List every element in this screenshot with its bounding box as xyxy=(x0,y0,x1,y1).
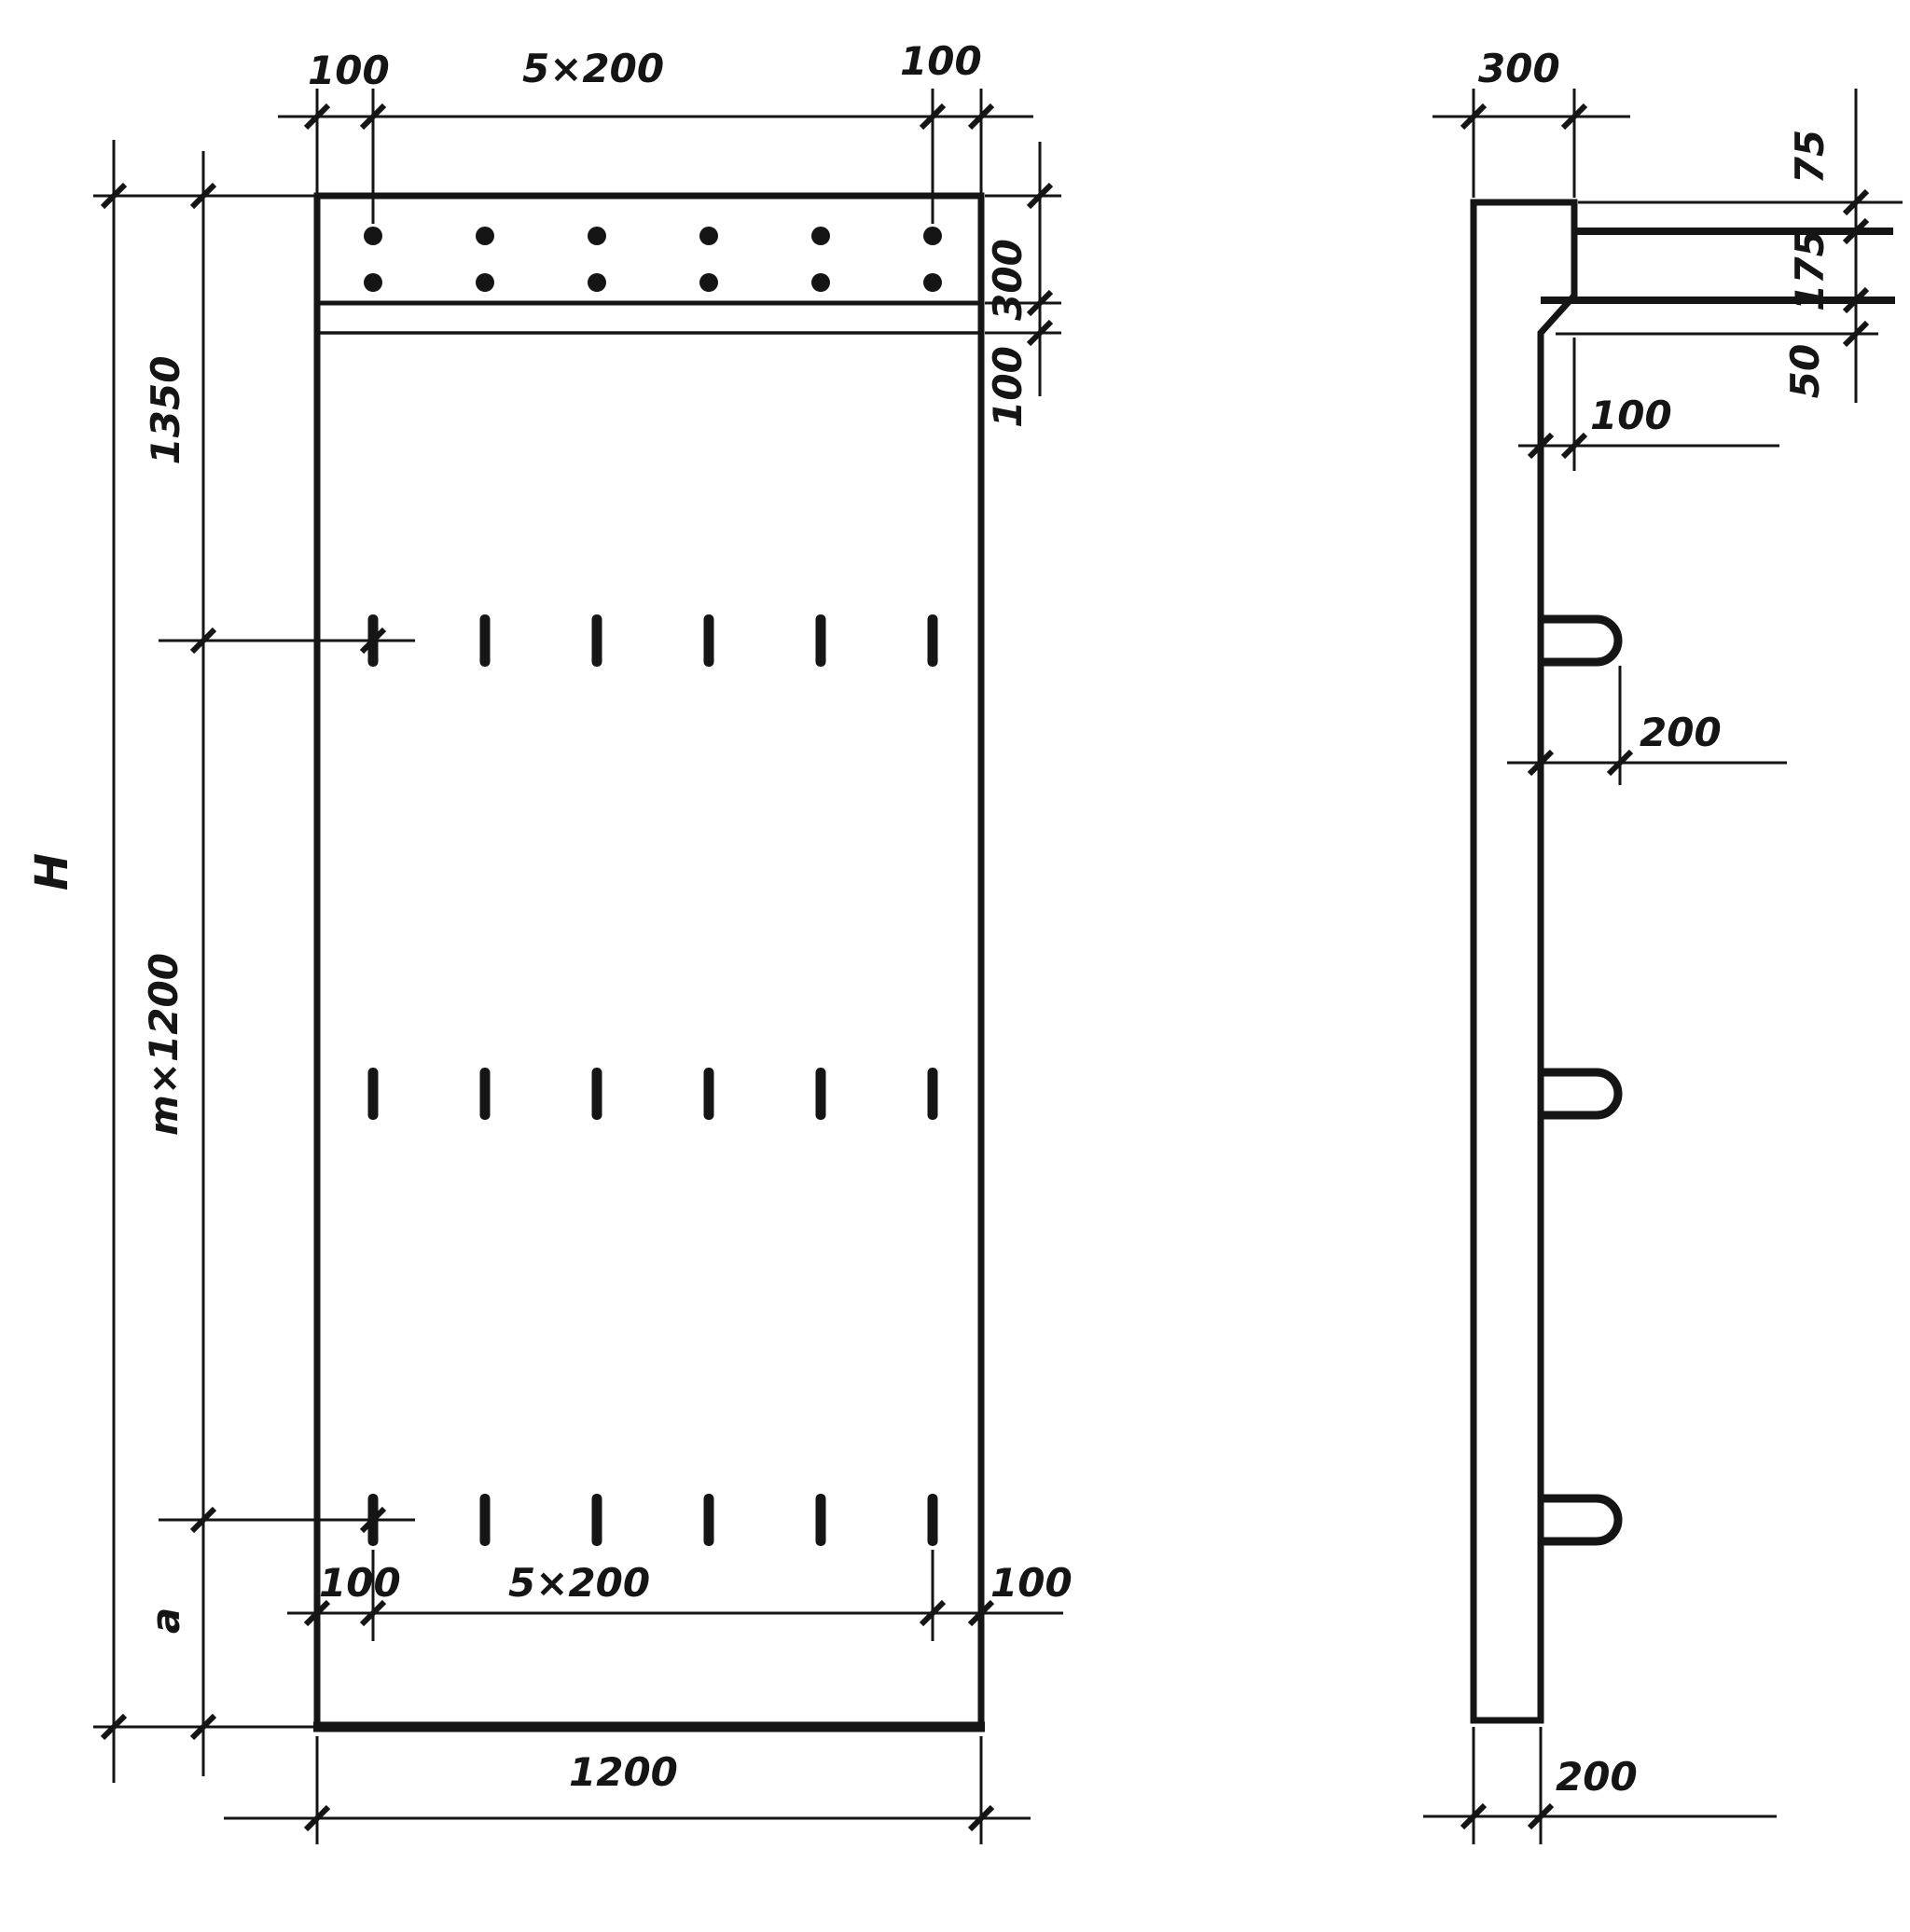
bolt-hole-dot xyxy=(364,227,382,245)
panel-slot xyxy=(592,614,602,667)
dim-side-50: 50 xyxy=(1782,344,1828,398)
dim-band-gap-100: 100 xyxy=(985,346,1031,428)
dim-segment-1350: 1350 xyxy=(143,356,188,465)
bolt-hole-dot xyxy=(476,273,494,292)
panel-slot xyxy=(480,614,491,667)
dim-band-300: 300 xyxy=(985,239,1031,321)
bolt-hole-dot xyxy=(364,273,382,292)
panel-slot xyxy=(816,1068,826,1120)
bolt-hole-dot xyxy=(923,273,942,292)
panel-slot xyxy=(928,1494,938,1546)
dim-side-bottom-200: 200 xyxy=(1556,1754,1638,1800)
dim-overall-H: H xyxy=(26,853,78,890)
dim-side-175: 175 xyxy=(1787,229,1833,311)
dim-segment-mx1200: m×1200 xyxy=(141,953,187,1136)
panel-slot-rows xyxy=(368,614,938,1546)
side-wall-outline xyxy=(1474,202,1574,1720)
panel-slot xyxy=(480,1494,491,1546)
drawing-sheet: 100 5×200 100 300 100 H 1350 m×1200 a 10… xyxy=(0,0,1910,1932)
bolt-hole-dot xyxy=(699,273,718,292)
panel-slot xyxy=(368,1068,379,1120)
panel-slot xyxy=(928,614,938,667)
side-top-dimension xyxy=(1432,89,1630,198)
dim-segment-a: a xyxy=(143,1608,188,1634)
dim-side-300: 300 xyxy=(1478,46,1560,91)
panel-slot xyxy=(704,1068,714,1120)
dim-side-75: 75 xyxy=(1787,130,1833,184)
bolt-hole-dot xyxy=(476,227,494,245)
panel-slot xyxy=(704,1494,714,1546)
top-band-hole-grid xyxy=(364,227,942,292)
lifting-loops xyxy=(1541,619,1618,1541)
panel-technical-drawing: 100 5×200 100 300 100 H 1350 m×1200 a 10… xyxy=(0,0,1910,1932)
bolt-hole-dot xyxy=(811,273,830,292)
dim-bottom-left-100: 100 xyxy=(319,1560,401,1606)
bolt-hole-dot xyxy=(588,227,606,245)
panel-slot xyxy=(816,1494,826,1546)
dim-top-right-100: 100 xyxy=(900,38,982,84)
lifting-loop xyxy=(1541,1498,1618,1541)
dim-top-left-100: 100 xyxy=(308,48,390,93)
front-panel-outline xyxy=(317,196,981,1727)
dim-width-1200: 1200 xyxy=(569,1749,678,1795)
panel-slot xyxy=(480,1068,491,1120)
bolt-hole-dot xyxy=(699,227,718,245)
dim-side-step-100: 100 xyxy=(1590,393,1672,438)
lifting-loop xyxy=(1541,619,1618,662)
dim-bottom-5x200: 5×200 xyxy=(508,1560,650,1606)
front-top-dimension xyxy=(278,89,1033,224)
bolt-hole-dot xyxy=(923,227,942,245)
bolt-hole-dot xyxy=(811,227,830,245)
bolt-hole-dot xyxy=(588,273,606,292)
dim-bottom-right-100: 100 xyxy=(990,1560,1073,1606)
lifting-loop xyxy=(1541,1072,1618,1115)
side-view xyxy=(1423,89,1903,1844)
panel-slot xyxy=(928,1068,938,1120)
panel-slot xyxy=(704,614,714,667)
panel-slot xyxy=(592,1068,602,1120)
dim-side-loop-200: 200 xyxy=(1640,710,1722,755)
panel-slot xyxy=(592,1494,602,1546)
dim-top-5x200: 5×200 xyxy=(522,46,664,91)
panel-slot xyxy=(816,614,826,667)
front-bottom-dimension xyxy=(287,1550,1063,1641)
